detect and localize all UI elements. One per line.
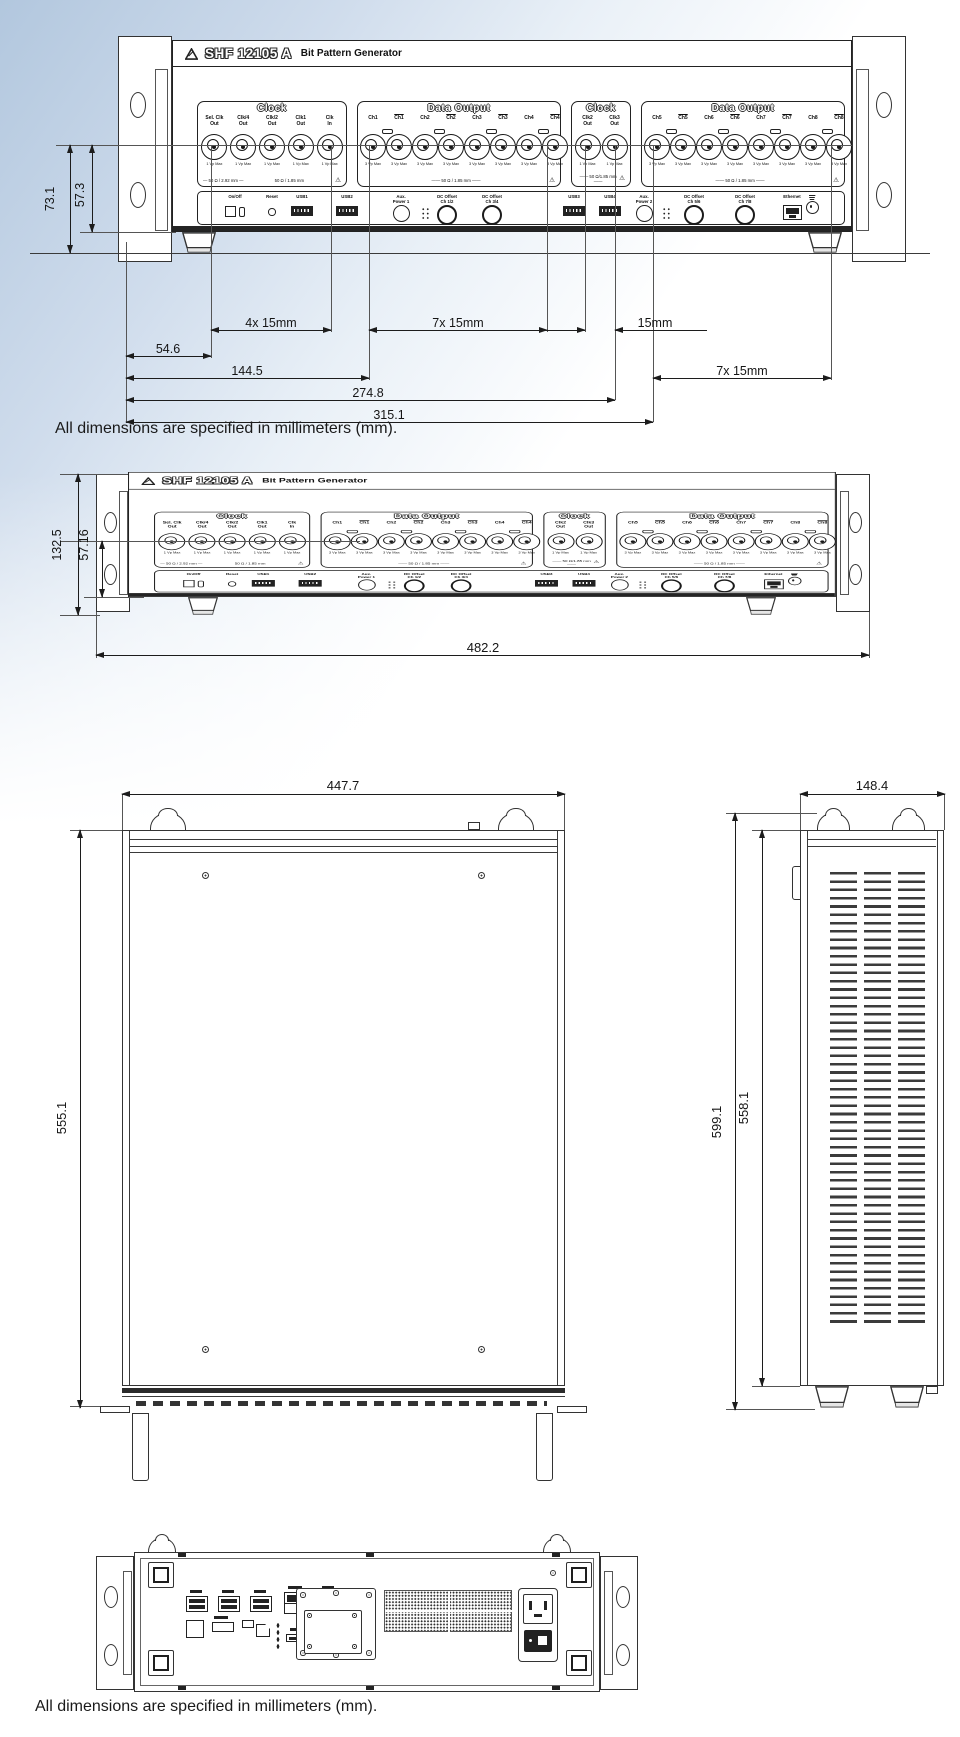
v2-bnc-port: Ch43 Vp Max	[486, 521, 513, 554]
v1-power-button: On/Off	[222, 195, 248, 217]
v1-base-strip	[173, 226, 851, 231]
v2-dc-glyph	[661, 579, 682, 592]
v1-bnc-port: Sel. Clk Out1 Vp Max	[200, 116, 229, 166]
dimension-label: 15mm	[615, 316, 695, 330]
power-rocker-switch	[524, 1630, 552, 1652]
cover-screw	[202, 1346, 209, 1353]
side-rail-line	[557, 831, 558, 1385]
v2-bnc-connector	[782, 533, 809, 550]
corner-cutout-inner	[153, 1655, 169, 1671]
v1-port-label: Ch7	[774, 116, 800, 129]
v2-port-note: 3 Vp Max	[378, 551, 405, 554]
rear-led-column	[276, 1622, 280, 1649]
v2-bnc-port: Ch33 Vp Max	[432, 521, 459, 554]
edge-clip	[552, 1686, 560, 1690]
v2-port-note: 1 Vp Max	[187, 551, 217, 554]
v1-warning-icon: ⚠	[619, 176, 625, 183]
v2-port-label: Ch3	[459, 521, 486, 529]
corner-cutout-inner	[571, 1567, 587, 1583]
top-edge-line	[808, 846, 936, 847]
v1-section-1: ClockSel. Clk Out1 Vp MaxClk/4 Out1 Vp M…	[197, 101, 347, 187]
v1-usb-port: USB1	[290, 195, 314, 216]
v1-bnc-connector	[259, 134, 285, 160]
dimension-line	[369, 330, 547, 331]
v1-bnc-port: Ch23 Vp Max	[412, 116, 438, 166]
v2-section-footer: —— 50 Ω/1.85 mm ——⚠	[550, 559, 600, 566]
rear-io-label	[254, 1590, 266, 1593]
v2-base-strip	[129, 593, 835, 596]
v2-port-label: Ch4	[486, 521, 513, 529]
v2-bnc-port: Ch13 Vp Max	[324, 521, 351, 554]
dimension-label: 555.1	[55, 1078, 69, 1158]
v2-dc-glyph	[714, 579, 735, 592]
v1-port-pair: Ch33 Vp MaxCh33 Vp Max	[464, 116, 516, 166]
extension-line	[944, 794, 945, 830]
v1-control-label: Ethernet	[780, 195, 804, 205]
panel-screw	[550, 1570, 556, 1576]
extension-line	[84, 597, 144, 598]
mounting-hole	[130, 182, 146, 208]
v2-bnc-connector	[619, 533, 646, 550]
v2-bnc-connector	[459, 533, 486, 550]
rear-latch	[468, 822, 480, 830]
v2-port-pair: Ch53 Vp MaxCh53 Vp Max	[619, 521, 673, 554]
side-vent-column	[830, 872, 857, 1328]
v1-reset-button: Reset	[264, 195, 280, 216]
rear-io-connector	[212, 1622, 234, 1632]
rack-ear-flange	[536, 1413, 553, 1481]
shf-logo-icon	[185, 48, 198, 60]
dimension-line	[92, 145, 93, 232]
v1-port-pair: Ch63 Vp MaxCh63 Vp Max	[696, 116, 748, 166]
v1-impedance-note: — 50 Ω / 2.92 mm —	[203, 178, 243, 183]
v2-bnc-connector	[701, 533, 728, 550]
v2-port-label: Ch7	[728, 521, 755, 529]
v1-eth-glyph	[783, 205, 802, 220]
v1-port-note: 3 Vp Max	[464, 162, 490, 166]
v2-impedance-note: —— 50 Ω/1.85 mm ——	[550, 559, 594, 566]
v2-port-note: 3 Vp Max	[755, 551, 782, 554]
v2-dc-glyph	[404, 579, 425, 592]
v1-bnc-port: Ch13 Vp Max	[386, 116, 412, 166]
edge-clip	[178, 1686, 186, 1690]
v1-chassis: SHF 12105 ABit Pattern GeneratorClockSel…	[172, 40, 852, 232]
v2-usb-glyph	[252, 580, 275, 587]
v1-bnc-port: Ch63 Vp Max	[722, 116, 748, 166]
v1-section-3: ClockClk2 Out1 Vp MaxClk3 Out1 Vp Max—— …	[571, 101, 631, 187]
dimension-label: 7x 15mm	[702, 364, 782, 378]
v1-bnc-connector	[696, 134, 722, 160]
rear-io-connector	[186, 1596, 208, 1612]
v2-bnc-connector	[728, 533, 755, 550]
v1-bnc-connector	[201, 134, 227, 160]
v1-pins-glyph	[420, 206, 429, 219]
v2-bnc-connector	[378, 533, 405, 550]
dimension-label: 132.5	[50, 505, 64, 585]
v2-port-note: 1 Vp Max	[277, 551, 307, 554]
v1-port-label: Clk3 Out	[601, 116, 628, 129]
v2-port-label: Sel. Clk Out	[157, 521, 187, 529]
top-edge-line	[808, 839, 936, 840]
rear-io-connector	[218, 1596, 240, 1612]
mesh-divider	[385, 1610, 513, 1612]
front-vent-dashes	[136, 1401, 547, 1406]
v1-bnc-port: Clk In1 Vp Max	[315, 116, 344, 166]
v2-bnc-port: Ch63 Vp Max	[673, 521, 700, 554]
v1-dc-glyph	[735, 205, 755, 225]
v1-port-label: Ch7	[748, 116, 774, 129]
v1-port-note: 3 Vp Max	[516, 162, 542, 166]
edge-clip	[178, 1553, 186, 1557]
v1-port-label: Ch5	[644, 116, 670, 129]
ac-pin-slot	[534, 1614, 542, 1617]
v2-control-row: On/OffResetUSB1USB2Aux. Power 1DC Offset…	[154, 570, 829, 592]
v1-power-switch-icon	[225, 206, 236, 217]
v2-control-label: USB3	[534, 573, 559, 580]
rack-ear-right	[836, 474, 870, 612]
v2-port-note: 1 Vp Max	[157, 551, 187, 554]
v2-ground-icon	[791, 573, 798, 576]
v1-port-label: Ch3	[464, 116, 490, 129]
dimension-label: 7x 15mm	[418, 316, 498, 330]
v1-usb-glyph	[291, 206, 313, 216]
extension-line	[122, 794, 123, 830]
dimension-label: 4x 15mm	[231, 316, 311, 330]
v1-title-bar: SHF 12105 ABit Pattern Generator	[173, 41, 851, 67]
v2-pins-glyph	[386, 580, 395, 588]
ac-socket	[523, 1594, 553, 1624]
v1-section-footer: —— 50 Ω / 1.85 mm ——⚠	[363, 178, 555, 185]
v1-product-text: Bit Pattern Generator	[301, 48, 402, 59]
v2-port-row: Ch13 Vp MaxCh13 Vp MaxCh23 Vp MaxCh23 Vp…	[324, 521, 530, 554]
dimension-label: 447.7	[303, 779, 383, 793]
v2-port-note: 3 Vp Max	[513, 551, 540, 554]
v1-port-note: 3 Vp Max	[774, 162, 800, 166]
mounting-hole	[130, 92, 146, 118]
dimension-line	[615, 330, 707, 331]
rack-ear-slot	[123, 1571, 132, 1675]
v2-bnc-port: Ch73 Vp Max	[728, 521, 755, 554]
v1-control-label: USB1	[290, 195, 314, 205]
edge-clip	[366, 1553, 374, 1557]
units-note: All dimensions are specified in millimet…	[35, 1698, 377, 1716]
v1-bnc-connector	[438, 134, 464, 160]
v2-bnc-connector	[646, 533, 673, 550]
extension-line	[60, 541, 360, 542]
plate-screw	[333, 1590, 339, 1596]
v1-bnc-connector	[748, 134, 774, 160]
v2-bnc-connector	[575, 533, 602, 550]
v2-port-label: Ch6	[673, 521, 700, 529]
rack-ear-left	[96, 1556, 134, 1690]
v2-port-pair: Ch83 Vp MaxCh83 Vp Max	[782, 521, 836, 554]
dimension-label: 57.16	[77, 505, 91, 585]
dimension-line	[96, 655, 869, 656]
v2-section-footer: —— 50 Ω / 1.85 mm ——⚠	[327, 562, 527, 566]
v2-section-title: Clock	[544, 513, 604, 520]
side-rail-line	[129, 831, 130, 1385]
v1-bnc-port: Ch33 Vp Max	[464, 116, 490, 166]
v1-bnc-connector	[516, 134, 542, 160]
v2-eth-glyph	[764, 579, 784, 589]
v1-bnc-connector	[490, 134, 516, 160]
v1-port-label: Ch4	[542, 116, 568, 129]
v1-bnc-port: Ch83 Vp Max	[800, 116, 826, 166]
v2-bnc-port: Clk3 Out1 Vp Max	[575, 521, 603, 554]
v1-port-label: Ch6	[722, 116, 748, 129]
v1-section-4: Data OutputCh53 Vp MaxCh53 Vp MaxCh63 Vp…	[641, 101, 845, 187]
v1-control-label: On/Off	[222, 195, 248, 205]
v1-port-row: Clk2 Out1 Vp MaxClk3 Out1 Vp Max	[574, 116, 628, 166]
mounting-hole	[616, 1586, 630, 1608]
v1-warning-icon: ⚠	[549, 178, 555, 185]
v1-port-note: 1 Vp Max	[200, 162, 229, 166]
v2-ethernet-port: Ethernet	[761, 573, 786, 589]
mounting-hole	[104, 1586, 118, 1608]
v2-dc-offset-jack: DC Offset Ch 7/8	[710, 573, 739, 593]
device-foot	[746, 597, 776, 615]
v1-control-label: DC Offset Ch 5/6	[680, 195, 708, 205]
rear-bumper	[926, 1386, 938, 1394]
top-foot	[148, 1538, 176, 1553]
v1-dc-offset-jack: DC Offset Ch 1/2	[433, 195, 461, 225]
v2-warning-icon: ⚠	[521, 562, 527, 566]
dimension-line	[211, 330, 331, 331]
v1-port-row: Ch53 Vp MaxCh53 Vp MaxCh63 Vp MaxCh63 Vp…	[644, 116, 842, 166]
v2-bnc-port: Ch53 Vp Max	[646, 521, 673, 554]
mounting-hole	[849, 564, 862, 585]
v1-control-label: USB3	[562, 195, 586, 205]
v1-bnc-port: Ch63 Vp Max	[696, 116, 722, 166]
v1-usb-port: USB2	[335, 195, 359, 216]
v1-aux-power-jack: Aux. Power 1	[388, 195, 414, 222]
shf-logo-icon	[142, 477, 156, 485]
v1-pin-header	[659, 195, 671, 219]
v2-power-glyph	[180, 580, 207, 587]
v2-section-1: ClockSel. Clk Out1 Vp MaxClk/4 Out1 Vp M…	[154, 512, 310, 568]
v2-usb-glyph	[573, 580, 596, 587]
cover-screw	[478, 1346, 485, 1353]
v2-reset-button: Reset	[224, 573, 241, 586]
v2-port-label: Ch6	[701, 521, 728, 529]
dimension-line	[122, 794, 565, 795]
v2-port-label: Clk/2 Out	[217, 521, 247, 529]
v2-dc-glyph	[451, 579, 472, 592]
v1-impedance-note: —— 50 Ω / 1.85 mm ——	[647, 178, 833, 183]
v2-usb-glyph	[535, 580, 558, 587]
v2-control-label: DC Offset Ch 1/2	[400, 573, 429, 580]
extension-line	[726, 813, 817, 814]
v1-port-pair: Ch83 Vp MaxCh83 Vp Max	[800, 116, 852, 166]
v2-port-note: 1 Vp Max	[575, 551, 603, 554]
v1-section-footer: — 50 Ω / 2.92 mm —50 Ω / 1.85 mm⚠	[203, 178, 341, 185]
v2-port-note: 3 Vp Max	[782, 551, 809, 554]
v1-bnc-connector	[670, 134, 696, 160]
rear-io-label	[214, 1616, 228, 1619]
v2-port-pair: Ch63 Vp MaxCh63 Vp Max	[673, 521, 727, 554]
v2-port-note: 3 Vp Max	[701, 551, 728, 554]
edge-clip	[552, 1553, 560, 1557]
rear-face-line	[937, 831, 938, 1385]
v2-port-label: Ch8	[809, 521, 836, 529]
dimension-label: 599.1	[710, 1082, 724, 1162]
top-view-outline	[122, 830, 565, 1386]
dimension-line	[126, 422, 653, 423]
v1-bnc-port: Ch43 Vp Max	[542, 116, 568, 166]
rack-ear-right	[852, 36, 906, 262]
v2-port-note: 3 Vp Max	[486, 551, 513, 554]
v2-impedance-note: — 50 Ω / 2.92 mm —	[160, 562, 202, 565]
dimension-line	[800, 794, 945, 795]
rack-ear-left	[118, 36, 172, 262]
v1-control-label: DC Offset Ch 7/8	[731, 195, 759, 205]
v1-port-label: Clk/4 Out	[229, 116, 258, 129]
v1-port-label: Clk In	[315, 116, 344, 129]
v1-port-note: 3 Vp Max	[438, 162, 464, 166]
v2-port-label: Clk In	[277, 521, 307, 529]
v2-dc-offset-jack: DC Offset Ch 5/6	[657, 573, 686, 593]
v2-bnc-port: Clk/2 Out1 Vp Max	[217, 521, 247, 554]
v2-port-label: Ch1	[324, 521, 351, 529]
v2-port-note: 1 Vp Max	[247, 551, 277, 554]
v1-bnc-port: Ch53 Vp Max	[670, 116, 696, 166]
v2-pins-glyph	[637, 580, 646, 588]
mounting-hole	[876, 92, 892, 118]
v2-bnc-port: Clk2 Out1 Vp Max	[546, 521, 574, 554]
v2-port-label: Ch8	[782, 521, 809, 529]
v1-bnc-port: Ch43 Vp Max	[516, 116, 542, 166]
v1-bnc-connector	[644, 134, 670, 160]
v1-port-row: Ch13 Vp MaxCh13 Vp MaxCh23 Vp MaxCh23 Vp…	[360, 116, 558, 166]
v1-control-label: DC Offset Ch 1/2	[433, 195, 461, 205]
rack-ear-wing	[557, 1406, 587, 1413]
v1-port-note: 1 Vp Max	[286, 162, 315, 166]
v1-bnc-port: Ch13 Vp Max	[360, 116, 386, 166]
v2-brand-text: SHF 12105 A	[162, 476, 252, 486]
v2-control-label: USB1	[251, 573, 276, 580]
v2-bnc-port: Ch43 Vp Max	[513, 521, 540, 554]
v1-bnc-port: Clk2 Out1 Vp Max	[574, 116, 601, 166]
v1-port-label: Ch1	[386, 116, 412, 129]
v2-ground-terminal	[787, 573, 802, 585]
v1-warning-icon: ⚠	[335, 178, 341, 185]
rack-ear-slot	[155, 69, 168, 231]
dimension-label: 315.1	[349, 408, 429, 422]
mounting-hole	[104, 564, 117, 585]
v2-power-switch-icon	[183, 580, 194, 587]
v1-ground-icon	[809, 195, 816, 200]
v2-port-label: Ch7	[755, 521, 782, 529]
v2-power-button: On/Off	[180, 573, 207, 587]
v2-bnc-port: Ch83 Vp Max	[809, 521, 836, 554]
device-foot	[890, 1386, 924, 1408]
rocker-window	[538, 1636, 547, 1645]
v1-port-pair: Ch73 Vp MaxCh73 Vp Max	[748, 116, 800, 166]
v1-port-note: 1 Vp Max	[574, 162, 601, 166]
rack-ear-slot	[856, 69, 869, 231]
v1-port-label: Sel. Clk Out	[200, 116, 229, 129]
extension-line	[726, 1409, 815, 1410]
plate-screw	[307, 1644, 312, 1649]
v2-warning-icon: ⚠	[816, 562, 822, 566]
v1-port-note: 3 Vp Max	[542, 162, 568, 166]
v1-bnc-port: Clk/4 Out1 Vp Max	[229, 116, 258, 166]
v2-aux-power-jack: Aux. Power 1	[353, 573, 380, 591]
front-edge-strip	[122, 1388, 565, 1393]
dimension-line	[80, 830, 81, 1408]
v1-dc-glyph	[482, 205, 502, 225]
dimension-label: 144.5	[207, 364, 287, 378]
v2-section-title: Data Output	[322, 513, 532, 520]
v1-port-note: 3 Vp Max	[748, 162, 774, 166]
v2-section-footer: —— 50 Ω / 1.85 mm ——⚠	[622, 562, 822, 566]
v2-port-note: 3 Vp Max	[646, 551, 673, 554]
v1-impedance-note: 50 Ω / 1.85 mm	[275, 178, 304, 183]
v2-usb-port: USB2	[298, 573, 323, 587]
v2-impedance-note: —— 50 Ω / 1.85 mm ——	[327, 562, 521, 565]
v2-port-label: Ch5	[646, 521, 673, 529]
v2-port-label: Clk/4 Out	[187, 521, 217, 529]
v1-jack-glyph	[393, 205, 410, 222]
v1-control-label: USB2	[335, 195, 359, 205]
v2-port-note: 1 Vp Max	[546, 551, 574, 554]
device-foot	[815, 1386, 849, 1408]
v1-impedance-note: —— 50 Ω / 1.85 mm ——	[363, 178, 549, 183]
v1-bnc-connector	[826, 134, 852, 160]
front-panel-small: SHF 12105 ABit Pattern GeneratorClockSel…	[128, 472, 836, 597]
front-edge-line	[122, 1396, 565, 1397]
edge-clip	[366, 1686, 374, 1690]
v2-impedance-note: —— 50 Ω / 1.85 mm ——	[622, 562, 816, 565]
v2-control-label: Reset	[224, 573, 241, 580]
cover-screw	[202, 872, 209, 879]
v1-port-label: Ch5	[670, 116, 696, 129]
v2-impedance-note: 50 Ω / 1.85 mm	[235, 562, 266, 565]
v1-usb-glyph	[563, 206, 585, 216]
v2-port-label: Ch4	[513, 521, 540, 529]
v1-port-note: 3 Vp Max	[722, 162, 748, 166]
v1-port-pair: Ch13 Vp MaxCh13 Vp Max	[360, 116, 412, 166]
v1-warning-icon: ⚠	[833, 178, 839, 185]
extension-line	[70, 1406, 100, 1407]
plate-screw	[366, 1650, 372, 1656]
v2-port-label: Clk1 Out	[247, 521, 277, 529]
rear-io-connector	[186, 1620, 204, 1638]
v1-dc-offset-jack: DC Offset Ch 7/8	[731, 195, 759, 225]
v2-usb-glyph	[299, 580, 322, 587]
v1-impedance-note: —— 50 Ω/1.85 mm ——	[577, 174, 619, 184]
v1-port-pair: Ch43 Vp MaxCh43 Vp Max	[516, 116, 568, 166]
v2-bnc-connector	[547, 533, 574, 550]
rack-ear-slot	[604, 1571, 613, 1675]
v1-section-title: Clock	[572, 103, 630, 114]
v1-port-note: 3 Vp Max	[696, 162, 722, 166]
v2-bnc-port: Ch53 Vp Max	[619, 521, 646, 554]
v2-port-note: 3 Vp Max	[351, 551, 378, 554]
plate-screw	[366, 1592, 372, 1598]
v1-bnc-connector	[288, 134, 314, 160]
mounting-hole	[876, 182, 892, 208]
v2-port-pair: Ch43 Vp MaxCh43 Vp Max	[486, 521, 540, 554]
v1-usb-glyph	[336, 206, 358, 216]
v2-port-note: 3 Vp Max	[405, 551, 432, 554]
rear-edge-line	[130, 839, 557, 840]
dimension-label: 54.6	[128, 342, 208, 356]
v2-control-label: DC Offset Ch 3/4	[447, 573, 476, 580]
rear-io-connector	[250, 1596, 272, 1612]
v2-gnd-glyph	[787, 577, 801, 585]
v2-bnc-connector	[513, 533, 540, 550]
